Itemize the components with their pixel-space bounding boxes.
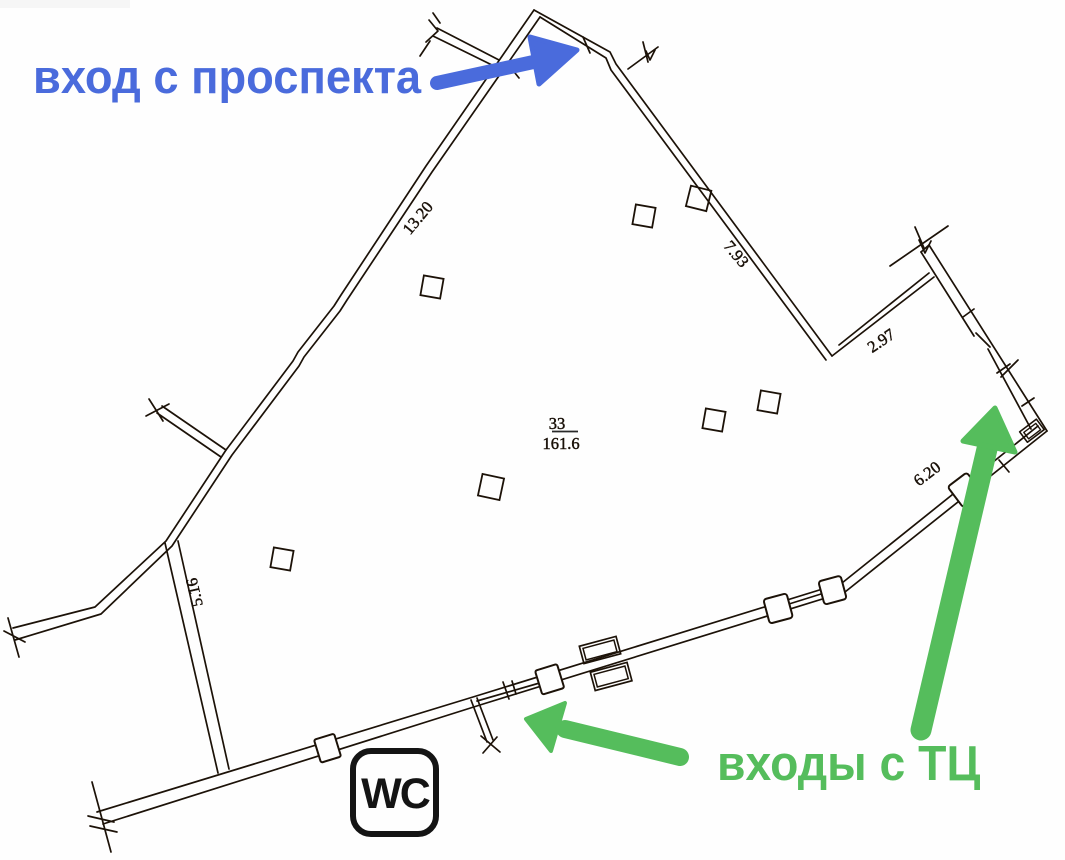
svg-text:WC: WC xyxy=(361,770,430,818)
svg-text:161.6: 161.6 xyxy=(542,434,579,453)
svg-text:33: 33 xyxy=(549,414,566,433)
